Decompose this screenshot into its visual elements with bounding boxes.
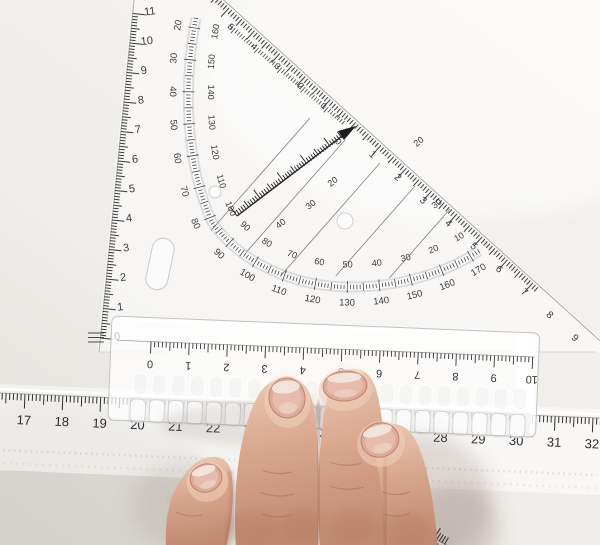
knuckle-shading <box>328 510 376 542</box>
grip-bead <box>456 386 471 408</box>
left-scale-number: 11 <box>143 5 156 18</box>
protractor-inner-number: 60 <box>314 256 326 268</box>
protractor-inner-number: 150 <box>206 54 217 70</box>
grip-bead <box>171 374 186 396</box>
grip-bead <box>380 383 395 405</box>
grip-bead <box>133 373 148 395</box>
bottom-ruler-number: 32 <box>584 436 599 452</box>
grip-bead <box>475 387 490 409</box>
bottom-ruler-number: 18 <box>54 414 69 430</box>
grip-bead <box>152 374 167 396</box>
bottom-ruler-number: 19 <box>92 415 107 431</box>
middle-ruler-number: 3 <box>261 362 268 374</box>
protractor-outer-number: 60 <box>171 152 184 164</box>
left-scale-number: 10 <box>140 35 154 48</box>
protractor-inner-number: 40 <box>371 257 382 268</box>
grip-bead <box>434 411 450 435</box>
knuckle-shading <box>278 510 326 542</box>
protractor-outer-number: 30 <box>168 53 180 65</box>
protractor-outer-number: 50 <box>167 119 179 130</box>
grip-bead <box>437 385 452 407</box>
bottom-ruler-number: 31 <box>546 434 561 450</box>
protractor-inner-number: 130 <box>206 115 217 131</box>
grip-bead <box>490 413 506 437</box>
grip-bead <box>453 412 469 436</box>
grip-bead <box>494 387 509 409</box>
middle-ruler-number: 4 <box>299 364 306 376</box>
air-bubble <box>337 213 353 229</box>
air-bubble <box>209 186 221 198</box>
photo-drafting-tools: Transparent drafting set square with bui… <box>0 0 600 545</box>
grip-bead <box>228 377 243 399</box>
grip-bead <box>509 414 525 438</box>
middle-ruler-number: 8 <box>452 370 459 382</box>
protractor-outer-number: 140 <box>373 295 390 308</box>
middle-ruler-number: 0 <box>147 358 154 370</box>
protractor-inner-number: 140 <box>206 85 216 100</box>
protractor-outer-number: 20 <box>172 19 185 31</box>
grip-bead <box>190 375 205 397</box>
grip-bead <box>471 413 487 437</box>
grip-bead <box>415 410 431 434</box>
middle-ruler-number: 6 <box>376 367 383 379</box>
middle-ruler-number: 10 <box>525 373 538 385</box>
protractor-inner-number: 50 <box>343 259 353 269</box>
knuckle-shading <box>226 510 278 545</box>
grip-bead <box>399 384 414 406</box>
protractor-outer-number: 40 <box>167 86 178 97</box>
protractor-outer-number: 130 <box>339 297 355 308</box>
knuckle-shading <box>386 512 430 544</box>
middle-ruler-number: 9 <box>490 371 497 383</box>
grip-bead <box>513 388 528 410</box>
grip-bead <box>209 376 224 398</box>
middle-ruler-number: 7 <box>414 368 421 380</box>
grip-bead <box>418 384 433 406</box>
grip-bead <box>130 399 146 423</box>
middle-ruler-number: 1 <box>185 359 192 371</box>
bottom-ruler-number: 17 <box>16 412 31 428</box>
middle-ruler-number: 2 <box>223 361 230 373</box>
